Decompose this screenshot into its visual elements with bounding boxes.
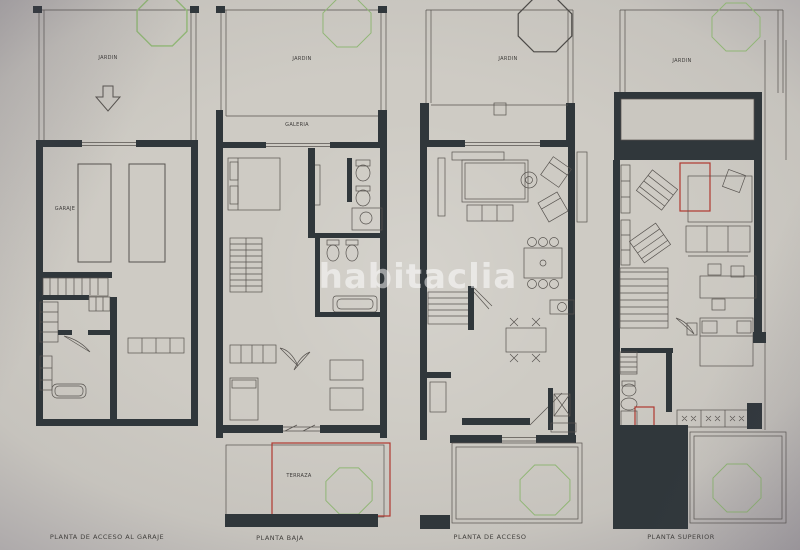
terrace-label: TERRAZA (285, 473, 312, 479)
bedroom (228, 158, 320, 210)
study-room (621, 163, 752, 265)
floorplan-drawing: JARDIN GARAJE (0, 0, 800, 550)
bidet (356, 190, 370, 206)
garden-label: JARDIN (497, 56, 517, 62)
terrace: TERRAZA (225, 443, 390, 527)
sink (360, 212, 372, 224)
bedroom (230, 378, 258, 420)
washer (620, 352, 637, 374)
tree-icon (520, 465, 570, 515)
sofa (452, 152, 504, 160)
galeria-label: GALERIA (285, 122, 309, 128)
armchair (541, 157, 572, 188)
lounge-chair (636, 170, 677, 210)
garden-area: JARDIN (33, 0, 199, 140)
kitchen-table (506, 328, 546, 352)
garden-area: JARDIN (620, 3, 783, 93)
side-table (521, 172, 537, 188)
bathtub (333, 296, 377, 312)
terrace (420, 435, 582, 529)
garden-area: JARDIN (426, 0, 573, 103)
highlight-rect (635, 407, 654, 428)
porch-strip (420, 103, 575, 145)
dining-table (524, 238, 562, 289)
garden-label: JARDIN (671, 58, 691, 64)
tree-icon (326, 468, 372, 514)
tree-icon (323, 0, 371, 47)
stools (510, 318, 540, 362)
door-swing (280, 348, 298, 366)
side-table (722, 169, 745, 192)
garage-door (82, 143, 136, 146)
door-swing (294, 352, 310, 370)
highlight-rect (680, 163, 710, 211)
bed (700, 318, 753, 366)
lounge-chair (629, 223, 670, 263)
plan-caption: PLANTA SUPERIOR (647, 533, 714, 541)
tree-icon (137, 0, 187, 46)
stairs (43, 272, 112, 300)
bedroom (330, 360, 363, 410)
floorplan-garage: JARDIN GARAJE (33, 0, 199, 541)
wardrobe (230, 345, 276, 363)
plan-caption: PLANTA DE ACCESO (454, 533, 527, 541)
wardrobe (677, 403, 762, 429)
sofa (467, 205, 513, 221)
armchair (538, 192, 568, 222)
garden-label: JARDIN (97, 55, 117, 61)
bathroom (620, 348, 673, 431)
down-arrow-icon (96, 86, 120, 111)
kitchen (462, 300, 576, 432)
watermark-text: habitaclia (319, 257, 518, 297)
terrace (613, 425, 786, 529)
desk (700, 264, 756, 310)
tree-icon (713, 464, 761, 512)
plan-caption: PLANTA BAJA (256, 534, 304, 542)
stairs (620, 268, 668, 328)
storage-room (427, 372, 451, 412)
parking-space (78, 164, 111, 262)
plan-caption: PLANTA DE ACCESO AL GARAJE (50, 533, 164, 541)
floorplan-photo: JARDIN GARAJE (0, 0, 800, 550)
garage-label: GARAJE (55, 206, 75, 212)
terrace-doors (283, 425, 320, 431)
door-swing (676, 318, 694, 334)
parking-space (129, 164, 165, 262)
sofa (686, 226, 750, 252)
toilet (356, 165, 370, 181)
garden-label: JARDIN (291, 56, 311, 62)
door-swing (64, 336, 90, 352)
garden-area: JARDIN (216, 0, 387, 116)
floorplan-superior: JARDIN (613, 3, 786, 541)
utility-rooms (40, 297, 184, 426)
tree-icon (518, 0, 572, 52)
stairs (230, 238, 262, 292)
galeria-strip: GALERIA (216, 110, 387, 142)
living-room (438, 152, 571, 222)
sink (558, 303, 567, 312)
bedroom (676, 318, 766, 366)
